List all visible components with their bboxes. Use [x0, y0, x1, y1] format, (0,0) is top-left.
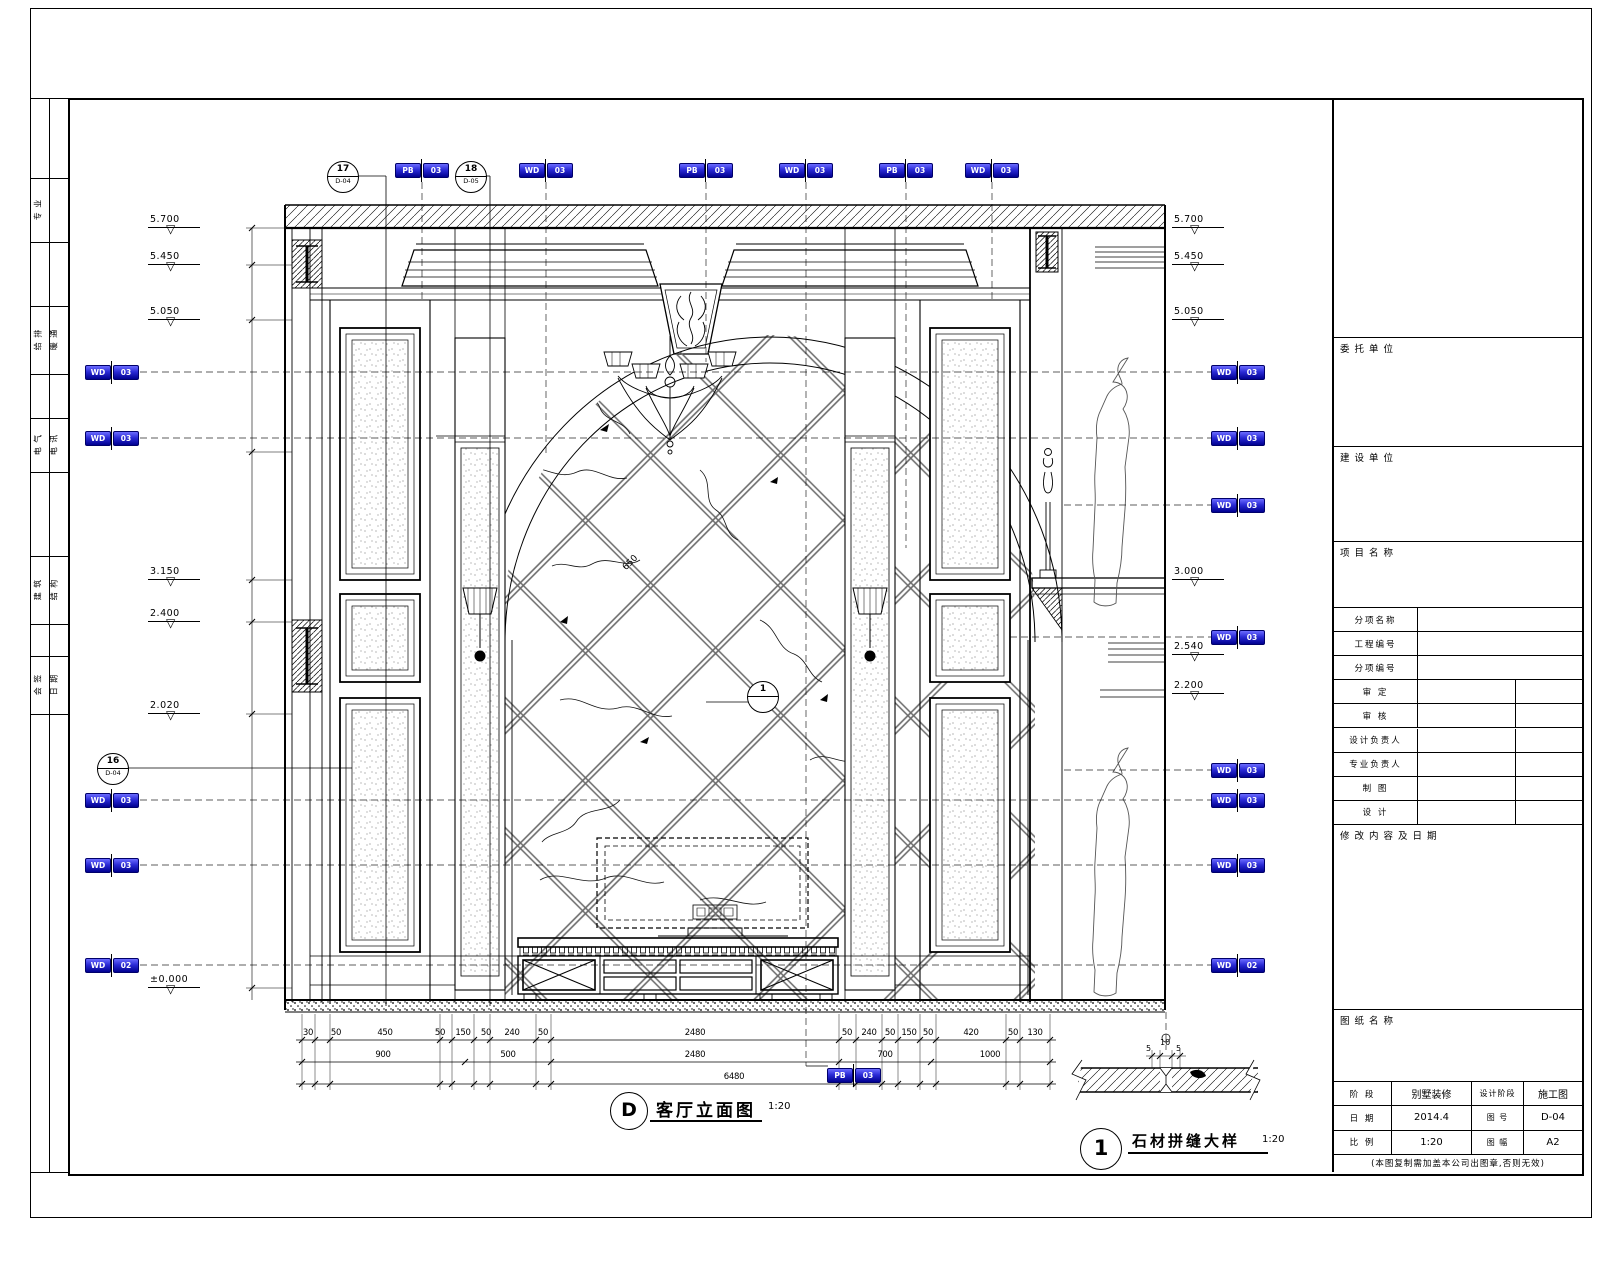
callout-sheet: D-05 — [456, 176, 486, 185]
cad-sheet: 专 业给 排暖 通电 气电 讯建 筑结 构会 签日 期 — [0, 0, 1600, 1280]
main-title-ref-circle: D — [610, 1092, 648, 1130]
level-value: 3.000 — [1174, 566, 1204, 577]
elevation-marker-right: 5.700▽ — [1174, 214, 1244, 240]
material-tag: WD03 — [1211, 858, 1265, 873]
material-tag-code: 02 — [113, 958, 139, 973]
joint-dimension-label: 5 — [1176, 1044, 1181, 1053]
row-label: 分项编号 — [1334, 656, 1418, 679]
material-tag-code: PB — [679, 163, 705, 178]
row-value — [1418, 632, 1582, 655]
material-tag: WD03 — [85, 858, 139, 873]
material-tag-code: 03 — [1239, 431, 1265, 446]
title-block-sheetname-box: 图纸名称 客厅D立面图 — [1334, 1010, 1582, 1082]
level-triangle-icon: ▽ — [166, 617, 175, 629]
row-label: 设 计 — [1334, 801, 1418, 824]
title-block-client-box: 委托单位 — [1334, 338, 1582, 447]
level-triangle-icon: ▽ — [1190, 260, 1199, 272]
material-tag-code: PB — [395, 163, 421, 178]
joint-dimension-label: 10 — [1160, 1038, 1170, 1047]
material-tag: WD03 — [85, 365, 139, 380]
grid-label: 日 期 — [1334, 1106, 1392, 1129]
material-tag-code: WD — [1211, 958, 1237, 973]
grid-label: 图 幅 — [1472, 1131, 1524, 1154]
row-label: 审 核 — [1334, 704, 1418, 727]
material-tag-code: PB — [879, 163, 905, 178]
material-tag-code: WD — [519, 163, 545, 178]
material-tag-code: WD — [85, 365, 111, 380]
row-value — [1418, 801, 1516, 824]
project-label: 项目名称 — [1340, 545, 1398, 559]
level-value: 2.200 — [1174, 680, 1204, 691]
grid-label: 比 例 — [1334, 1131, 1392, 1154]
level-value: 5.050 — [1174, 306, 1204, 317]
level-triangle-icon: ▽ — [166, 315, 175, 327]
row-value-2 — [1516, 704, 1582, 727]
dimension-label: 420 — [949, 1028, 993, 1038]
material-tag-code: 03 — [113, 793, 139, 808]
elevation-marker-left: 5.700▽ — [150, 214, 220, 240]
material-tag: PB03 — [395, 163, 449, 178]
elevation-marker-right: 3.000▽ — [1174, 566, 1244, 592]
material-tag-code: WD — [1211, 793, 1237, 808]
level-value: 5.700 — [150, 214, 180, 225]
level-triangle-icon: ▽ — [166, 260, 175, 272]
material-tag: WD03 — [779, 163, 833, 178]
level-triangle-icon: ▽ — [1190, 223, 1199, 235]
elevation-marker-left: ±0.000▽ — [150, 974, 220, 1000]
elevation-marker-left: 5.450▽ — [150, 251, 220, 277]
material-tag: WD03 — [1211, 431, 1265, 446]
material-tag-code: 03 — [113, 365, 139, 380]
level-triangle-icon: ▽ — [1190, 315, 1199, 327]
title-block-logo-box — [1334, 98, 1582, 338]
material-tag-code: 03 — [113, 858, 139, 873]
callout-number: 16 — [98, 754, 128, 768]
detail-callout: 17D-04 — [327, 161, 359, 193]
material-tag: PB03 — [879, 163, 933, 178]
title-block-row: 分项名称 — [1334, 608, 1582, 632]
dimension-label: 50 — [521, 1028, 565, 1038]
row-value — [1418, 704, 1516, 727]
level-value: 5.050 — [150, 306, 180, 317]
dimension-label: 500 — [486, 1050, 530, 1060]
material-tag: PB03 — [827, 1068, 881, 1083]
material-tag: WD03 — [519, 163, 573, 178]
elevation-marker-left: 5.050▽ — [150, 306, 220, 332]
dimension-label: 1000 — [968, 1050, 1012, 1060]
material-tag-code: 03 — [855, 1068, 881, 1083]
material-tag: WD03 — [85, 793, 139, 808]
material-tag-code: WD — [1211, 365, 1237, 380]
row-label: 专业负责人 — [1334, 753, 1418, 776]
row-value-2 — [1516, 753, 1582, 776]
material-tag-code: WD — [965, 163, 991, 178]
dimension-label: 50 — [906, 1028, 950, 1038]
grid-value: D-04 — [1524, 1106, 1582, 1129]
level-triangle-icon: ▽ — [166, 575, 175, 587]
level-value: 3.150 — [150, 566, 180, 577]
row-value — [1418, 680, 1516, 703]
elevation-marker-right: 5.450▽ — [1174, 251, 1244, 277]
dimension-label: 6480 — [712, 1072, 756, 1082]
elevation-marker-left: 2.400▽ — [150, 608, 220, 634]
title-block-project-box: 项目名称 — [1334, 542, 1582, 608]
elevation-marker-left: 3.150▽ — [150, 566, 220, 592]
info-grid-row: 比 例1:20图 幅A2 — [1334, 1131, 1582, 1155]
row-label: 分项名称 — [1334, 608, 1418, 631]
grid-label: 阶 段 — [1334, 1082, 1392, 1105]
row-label: 审 定 — [1334, 680, 1418, 703]
title-block-row: 分项编号 — [1334, 656, 1582, 680]
dimension-label: 130 — [1013, 1028, 1057, 1038]
row-value — [1418, 777, 1516, 800]
title-block-row: 设 计 — [1334, 801, 1582, 825]
material-tag-code: 03 — [1239, 763, 1265, 778]
callout-sheet — [748, 696, 778, 697]
title-block-row: 工程编号 — [1334, 632, 1582, 656]
material-tag-code: WD — [85, 858, 111, 873]
material-tag: WD03 — [1211, 763, 1265, 778]
client-label: 委托单位 — [1340, 341, 1398, 355]
title-block-row: 审 核 — [1334, 704, 1582, 728]
level-triangle-icon: ▽ — [1190, 689, 1199, 701]
material-tag: WD03 — [965, 163, 1019, 178]
grid-label: 设计阶段 — [1472, 1082, 1524, 1105]
main-title-text: 客厅立面图 — [656, 1096, 756, 1121]
material-tag-code: 03 — [1239, 793, 1265, 808]
material-tag-code: 03 — [1239, 858, 1265, 873]
level-value: 2.020 — [150, 700, 180, 711]
grid-label: 图 号 — [1472, 1106, 1524, 1129]
elevation-marker-right: 2.540▽ — [1174, 641, 1244, 667]
dimension-label: 2480 — [673, 1028, 717, 1038]
builder-label: 建设单位 — [1340, 450, 1398, 464]
row-value — [1418, 729, 1516, 752]
title-block-row: 制 图 — [1334, 777, 1582, 801]
material-tag-code: 03 — [423, 163, 449, 178]
joint-dimension-label: 5 — [1146, 1044, 1151, 1053]
level-triangle-icon: ▽ — [166, 709, 175, 721]
material-tag: WD03 — [1211, 365, 1265, 380]
title-block-row: 审 定 — [1334, 680, 1582, 704]
level-value: 5.700 — [1174, 214, 1204, 225]
row-label: 制 图 — [1334, 777, 1418, 800]
material-tag: WD03 — [85, 431, 139, 446]
detail-callout: 18D-05 — [455, 161, 487, 193]
material-tag: PB03 — [679, 163, 733, 178]
dimension-label: 2480 — [673, 1050, 717, 1060]
row-value — [1418, 753, 1516, 776]
material-tag-code: WD — [85, 431, 111, 446]
material-tag-code: 03 — [707, 163, 733, 178]
material-tag: WD02 — [1211, 958, 1265, 973]
detail-title-scale: 1:20 — [1262, 1134, 1284, 1145]
title-block-row: 设计负责人 — [1334, 729, 1582, 753]
info-grid-row: 阶 段别墅装修设计阶段施工图 — [1334, 1082, 1582, 1106]
sheetname-label: 图纸名称 — [1340, 1013, 1398, 1027]
grid-value: A2 — [1524, 1131, 1582, 1154]
grid-value: 1:20 — [1392, 1131, 1472, 1154]
material-tag-code: WD — [85, 958, 111, 973]
row-label: 设计负责人 — [1334, 729, 1418, 752]
material-tag-code: 03 — [807, 163, 833, 178]
title-block-row: 专业负责人 — [1334, 753, 1582, 777]
detail-callout: 16D-04 — [97, 753, 129, 785]
grid-value: 施工图 — [1524, 1082, 1582, 1105]
title-block-note: (本图复制需加盖本公司出图章,否则无效) — [1334, 1157, 1582, 1169]
main-title-scale: 1:20 — [768, 1101, 790, 1112]
detail-title-ref-circle: 1 — [1080, 1128, 1122, 1170]
material-tag-code: WD — [779, 163, 805, 178]
row-value-2 — [1516, 680, 1582, 703]
material-tag-code: 03 — [113, 431, 139, 446]
material-tag: WD02 — [85, 958, 139, 973]
material-tag: WD03 — [1211, 793, 1265, 808]
level-triangle-icon: ▽ — [166, 983, 175, 995]
main-title-underline — [650, 1120, 762, 1122]
material-tag-code: 03 — [1239, 498, 1265, 513]
material-tag: WD03 — [1211, 498, 1265, 513]
row-value-2 — [1516, 729, 1582, 752]
row-value-2 — [1516, 801, 1582, 824]
material-tag-code: WD — [1211, 858, 1237, 873]
row-value-2 — [1516, 777, 1582, 800]
level-value: 2.540 — [1174, 641, 1204, 652]
level-value: 5.450 — [1174, 251, 1204, 262]
detail-drawing-title: 1 石材拼缝大样 1:20 — [1080, 1128, 1340, 1176]
info-grid-row: 日 期2014.4图 号D-04 — [1334, 1106, 1582, 1130]
row-value — [1418, 656, 1582, 679]
callout-sheet: D-04 — [328, 176, 358, 185]
callout-sheet: D-04 — [98, 768, 128, 777]
dimension-label: 50 — [314, 1028, 358, 1038]
row-value — [1418, 608, 1582, 631]
callout-number: 18 — [456, 162, 486, 176]
elevation-marker-right: 5.050▽ — [1174, 306, 1244, 332]
dimension-label: 900 — [361, 1050, 405, 1060]
detail-title-text: 石材拼缝大样 — [1132, 1130, 1240, 1151]
level-triangle-icon: ▽ — [1190, 575, 1199, 587]
level-triangle-icon: ▽ — [1190, 650, 1199, 662]
material-tag-code: WD — [1211, 763, 1237, 778]
material-tag-code: 03 — [907, 163, 933, 178]
material-tag-code: 02 — [1239, 958, 1265, 973]
detail-callout: 1 — [747, 681, 779, 713]
revision-label: 修改内容及日期 — [1340, 828, 1442, 842]
material-tag-code: WD — [1211, 498, 1237, 513]
elevation-marker-left: 2.020▽ — [150, 700, 220, 726]
level-triangle-icon: ▽ — [166, 223, 175, 235]
title-block-revision-box: 修改内容及日期 — [1334, 825, 1582, 1010]
material-tag-code: PB — [827, 1068, 853, 1083]
dimension-label: 700 — [863, 1050, 907, 1060]
callout-number: 17 — [328, 162, 358, 176]
main-drawing-title: D 客厅立面图 1:20 — [610, 1092, 870, 1136]
level-value: 5.450 — [150, 251, 180, 262]
elevation-marker-right: 2.200▽ — [1174, 680, 1244, 706]
material-tag-code: WD — [85, 793, 111, 808]
level-value: 2.400 — [150, 608, 180, 619]
material-tag-code: 03 — [993, 163, 1019, 178]
grid-value: 2014.4 — [1392, 1106, 1472, 1129]
title-block-builder-box: 建设单位 — [1334, 447, 1582, 542]
title-block: 委托单位 建设单位 项目名称 分项名称工程编号分项编号审 定审 核设计负责人专业… — [1332, 98, 1582, 1172]
detail-title-underline — [1128, 1152, 1268, 1154]
dimension-label: 450 — [363, 1028, 407, 1038]
row-label: 工程编号 — [1334, 632, 1418, 655]
material-tag-code: WD — [1211, 431, 1237, 446]
material-tag-code: 03 — [1239, 365, 1265, 380]
callout-number: 1 — [748, 682, 778, 696]
material-tag-code: 03 — [547, 163, 573, 178]
grid-value: 别墅装修 — [1392, 1082, 1472, 1105]
